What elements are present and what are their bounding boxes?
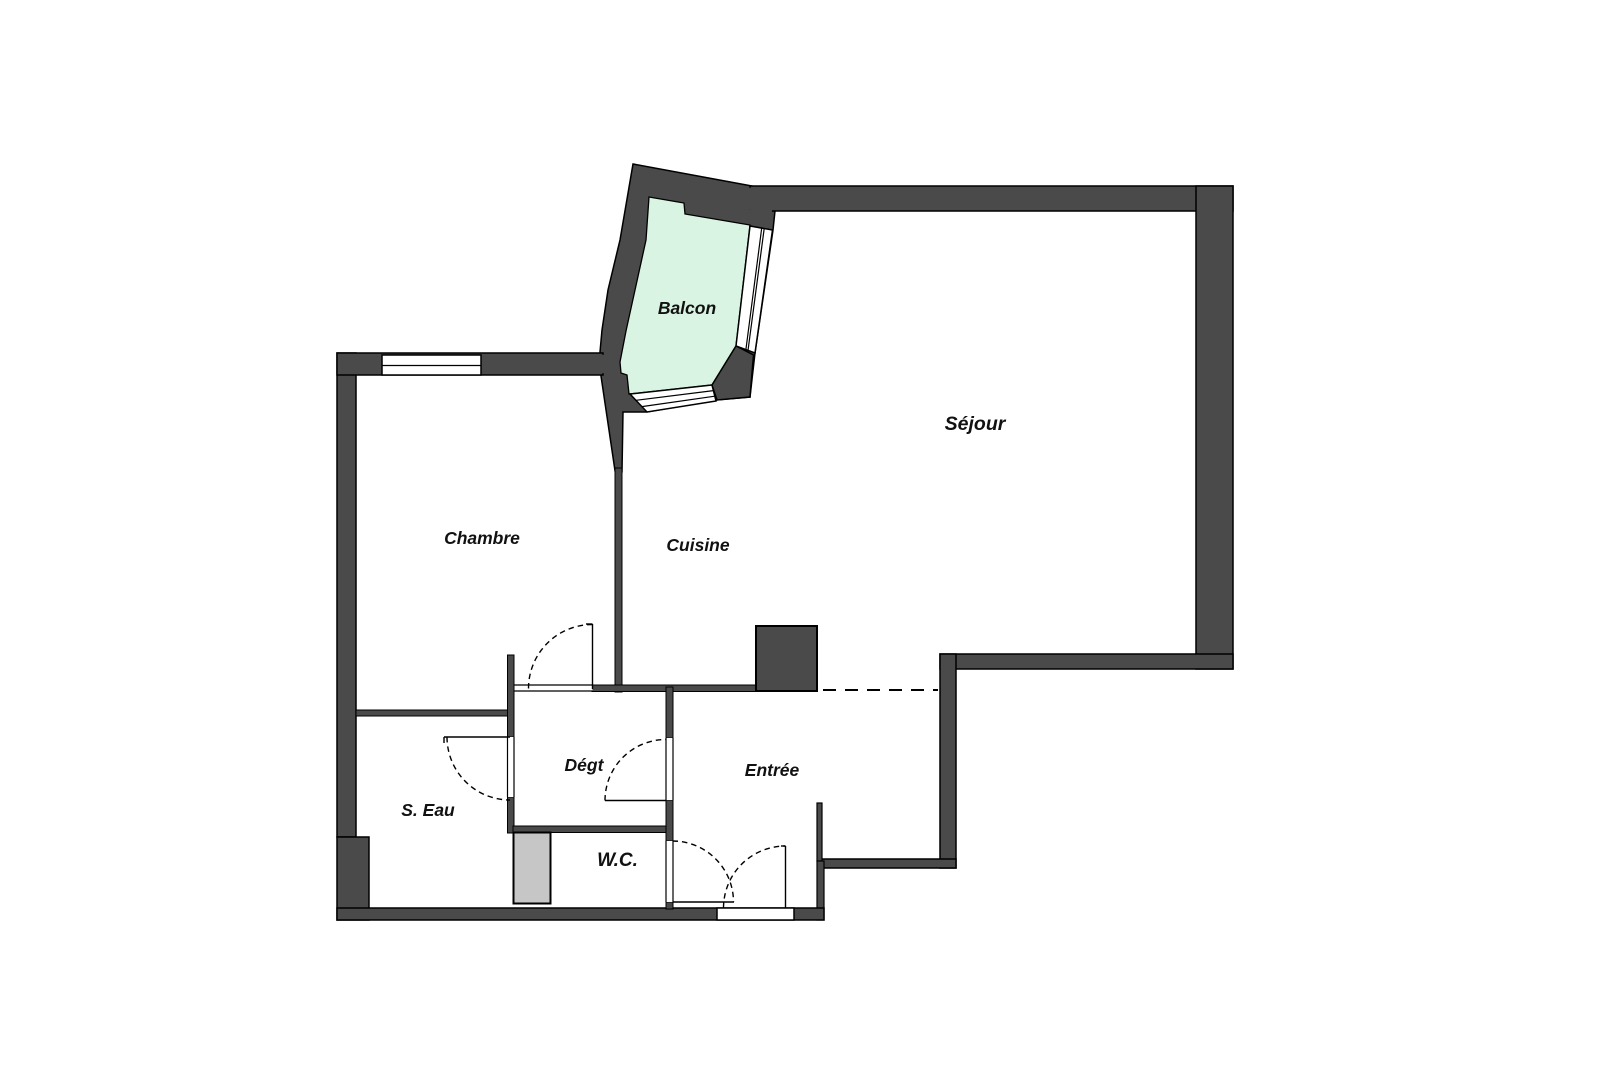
svg-text:S. Eau: S. Eau xyxy=(401,800,455,820)
svg-text:W.C.: W.C. xyxy=(597,850,638,871)
svg-text:Cuisine: Cuisine xyxy=(666,535,729,555)
svg-text:Chambre: Chambre xyxy=(444,528,520,548)
svg-text:Balcon: Balcon xyxy=(658,298,716,318)
svg-text:Dégt: Dégt xyxy=(565,755,605,775)
svg-text:Entrée: Entrée xyxy=(745,760,800,780)
svg-text:Séjour: Séjour xyxy=(945,413,1007,435)
